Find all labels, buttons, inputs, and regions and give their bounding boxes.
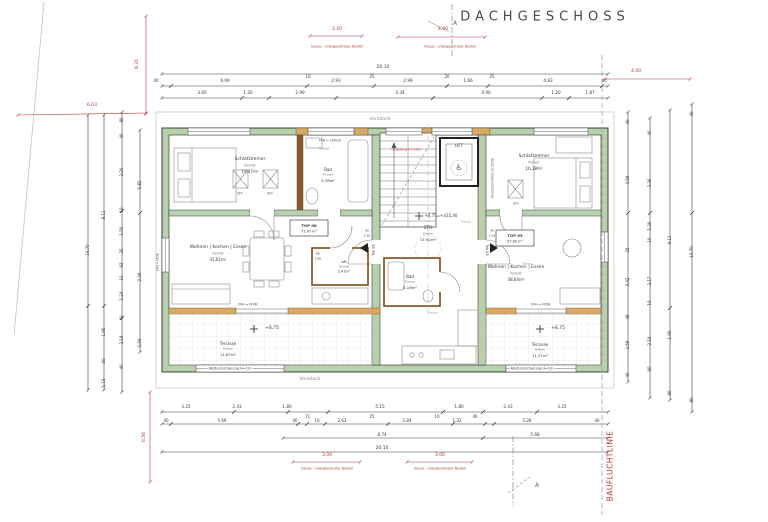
absturzsicherung-label: Absturzsicherung H=1m [208,367,253,371]
room-bad-left: Bad [324,168,332,172]
room-wohnen-right-area: 38,64m² [508,278,525,282]
room-ar: AR [341,260,346,264]
dim-left: 2.19 [120,336,124,345]
absturzsicherung-label: Absturzsicherung H=1m [510,367,555,371]
room-terrasse-left-floor: Platten [222,348,235,351]
dff-label: DFF [267,192,273,195]
level-terrasse-right: +8,75 [551,327,565,332]
dim-left: 25 [120,248,124,253]
dim-gaupe-bottom-right: 3.00 [435,454,445,459]
dim-left: 2.59 [138,339,142,348]
gaupe-note-bottom-left: Gaupe - untergeordneter Bauteil [301,467,353,470]
entry-top06: Top 06 [372,243,376,256]
dim-right: 3.36 [648,179,652,188]
dim-gaupe-width-left: 2.20 [332,28,342,33]
room-bad-left-floor: Fliesen [323,174,334,177]
dim-right: 48 [626,314,630,319]
ffh-ffok-label: FFH = FFOK [530,303,551,306]
gaupe-note-bottom-right: Gaupe - untergeordneter Bauteil [414,467,466,470]
dim-bot3: 8.74 [377,433,386,437]
dim-gaupe-width-mid: 4.90 [438,28,448,33]
dim-right: 80 [668,390,672,395]
dim-right: 25 [626,247,630,252]
level-core: +8,75=+435,40 [425,214,458,218]
dim-bot2: 40 [594,419,599,423]
room-sth-floor: Fliesen [423,233,434,236]
door-size: 2.00 [315,258,322,261]
dim-right: 1.90 [668,331,672,340]
entry-top05: Top 05 [484,243,488,256]
dim-left: 60 [102,358,106,363]
dim-right: 2.19 [648,337,652,346]
dim-left: 5.82 [138,181,142,190]
labels-layer: DACHGESCHOSS 2.20Gaupe - untergeordneter… [0,0,768,522]
room-wohnen-left: Wohnen | Kochen | Essen [190,246,247,251]
dim-left: 10 [120,207,124,212]
room-schlafzimmer-right-floor: Parkett [528,161,539,164]
dim-right: 1.26 [648,222,652,231]
room-terrasse-left: Terrasse [219,342,238,346]
door-size: 2.20 [364,235,371,238]
top05-box-area: 57,60 m² [507,240,523,244]
room-sth-area: 11,92m² [420,238,436,242]
dim-bot2: 5.28 [523,419,532,423]
dim-top2: 25 [369,75,374,79]
wheelchair-icon: ♿ [455,164,462,172]
dim-bot2: 2.84 [403,419,412,423]
ffh-ffok-label: FFH = FFOK [237,303,258,306]
dim-red-831: 8.31 [136,59,141,69]
gaupe-small: Gaupe [319,147,329,150]
dim-right: 80 [690,397,694,402]
dim-bot2: 2.63 [338,419,347,423]
dim-top3: 3.60 [197,91,206,95]
gaupe-small: Gaupe [428,312,438,315]
gaupe-note-top-mid: Gaupe - untergeordneter Bauteil [424,45,476,48]
dim-bot2: 10 [314,419,319,423]
dim-left: 1.50 [120,227,124,236]
dim-right: 40 [690,111,694,116]
dim-top2: 20 [444,75,449,79]
dff-label: DFF [237,192,243,195]
dim-top2: 2.99 [403,79,412,83]
dim-bot2: 1.32 [453,419,462,423]
dim-red-656: 6.56 [143,432,148,442]
dim-right: 8.11 [668,236,672,245]
dim-top2: 2.93 [331,79,340,83]
ffh-ffok-label: FFH = FFOK [157,252,160,272]
ffh-100-label: FFH = 100cm [319,139,341,142]
dim-left: 92 [120,262,124,267]
top06-box-area: 71,47 m² [301,230,317,234]
room-wohnen-right: Wohnen | Kochen | Essen [488,266,545,271]
dim-left: 8.11 [102,211,106,220]
dim-left: 1.24 [120,292,124,301]
level-terrasse-left: +8,75 [265,327,279,332]
dim-total-bottom: 20.10 [376,447,389,452]
dim-left: 3.20 [120,168,124,177]
dim-bot3: 5.68 [530,433,539,437]
top06-box-label: TOP 06 [301,224,316,228]
kniestock-note: Kniestockhöhe (2,56m) [491,158,495,199]
bruestung-note: Brüstung >+1,0m [392,148,421,151]
dim-red-603: 6.03 [87,104,97,109]
baufluchtlinie-label: BAUFLUCHTLINIE [606,431,614,502]
dim-top3: 1.20 [243,91,252,95]
dim-right: 10 [648,237,652,242]
room-schlafzimmer-left-floor: Parkett [244,164,255,167]
floorplan-page: DACHGESCHOSS 2.20Gaupe - untergeordneter… [0,0,768,522]
section-marker-top: A [453,21,457,27]
dim-top2: 40 [601,79,606,83]
dim-right: 40 [626,372,630,377]
dim-bot1: 1.80 [454,405,463,409]
dim-top2: 10 [305,75,310,79]
room-schlafzimmer-left: Schlafzimmer [235,158,266,163]
dim-left: 10.70 [86,244,90,255]
dim-red-400: 4.00 [631,70,641,75]
gaupe-note-top-left: Gaupe - untergeordneter Bauteil [311,45,363,48]
dim-top3: 4.34 [395,91,404,95]
room-wohnen-right-floor: Parkett [510,272,521,275]
room-terrasse-right-area: 11,57m² [531,354,549,358]
dim-bot2: 5.69 [218,419,227,423]
voradach-label-top: Voradach [369,118,390,123]
dff-label: DFF [513,202,519,205]
dim-bot1: 3.25 [181,405,190,409]
gaupe-small: Gaupe [461,221,471,224]
dim-right: 4.69 [626,176,630,185]
room-terrasse-right-floor: Platten [534,349,547,352]
door-size: 2.20 [489,235,496,238]
dim-top3: 1.20 [551,91,560,95]
section-marker-bottom: A [535,483,539,489]
dim-bot1: 2.43 [503,405,512,409]
dim-bot2: 40 [292,419,297,423]
dim-left: 10 [120,275,124,280]
room-terrasse-right: Terrasse [531,343,550,347]
top05-box-label: TOP 05 [507,234,522,238]
dim-bot2: 40 [472,415,477,419]
dim-bot2: 40 [163,419,168,423]
dim-left: 1.90 [102,328,106,337]
room-schlafzimmer-left-area: 19,47m² [242,170,259,174]
dim-left: 40 [120,364,124,369]
dim-top3: 4.90 [481,91,490,95]
dim-left: 40 [120,315,124,320]
dim-left: 2.29 [138,273,142,282]
room-schlafzimmer-right: Schlafzimmer [519,155,550,160]
dim-gaupe-bottom-left: 3.00 [322,454,332,459]
dim-right: 60 [648,366,652,371]
voradach-label-bottom: Voradach [299,378,320,383]
room-bad-mid: Bad [406,275,414,279]
door-size: 80 [316,253,320,256]
dim-top2: 25 [489,75,494,79]
room-bad-mid-floor: Fliesen [405,281,416,284]
room-bad-left-area: 9,38m² [321,179,335,183]
dim-top3: 2.99 [295,91,304,95]
dim-bot2: 25 [369,415,374,419]
dim-left: 80 [120,117,124,122]
dim-bot1: 2.43 [232,405,241,409]
dim-right: 10.70 [690,246,694,257]
dim-right: 2.17 [648,277,652,286]
room-lift: LIFT [455,144,463,148]
door-size: 90 [490,230,494,233]
dim-bot1: 3.25 [557,405,566,409]
dim-bot1: 5.15 [375,405,384,409]
dim-total-top: 20.10 [377,66,390,71]
dim-top2: 1.66 [463,79,472,83]
dim-right: 3.42 [626,278,630,287]
dim-right: 40 [648,130,652,135]
room-bad-mid-area: 6,16m² [403,286,417,290]
room-wohnen-left-area: 42,61m² [210,258,227,262]
dim-top2: 4.83 [543,79,552,83]
dim-right: 10 [648,300,652,305]
dim-bot2: .71 [304,415,310,419]
room-ar-area: 2,41m² [338,270,351,274]
dim-left: 1.10 [102,379,106,388]
dim-bot1: 1.80 [282,405,291,409]
dim-right: 40 [626,119,630,124]
drawing-title: DACHGESCHOSS [460,11,629,24]
room-terrasse-left-area: 11,87m² [219,353,237,357]
room-wohnen-left-floor: Parkett [212,252,223,255]
door-size: 90 [365,230,369,233]
dim-right: 2.59 [626,341,630,350]
dim-top2: 6.09 [220,79,229,83]
dim-top2: 40 [153,79,158,83]
dim-top3: 1.87 [585,91,594,95]
room-schlafzimmer-right-area: 16,18m² [526,167,543,171]
dim-left: 40 [120,133,124,138]
dim-bot2: 10 [434,415,439,419]
gaupe-small: Gaupe [522,263,532,266]
room-ar-floor: Parkett [339,266,350,269]
